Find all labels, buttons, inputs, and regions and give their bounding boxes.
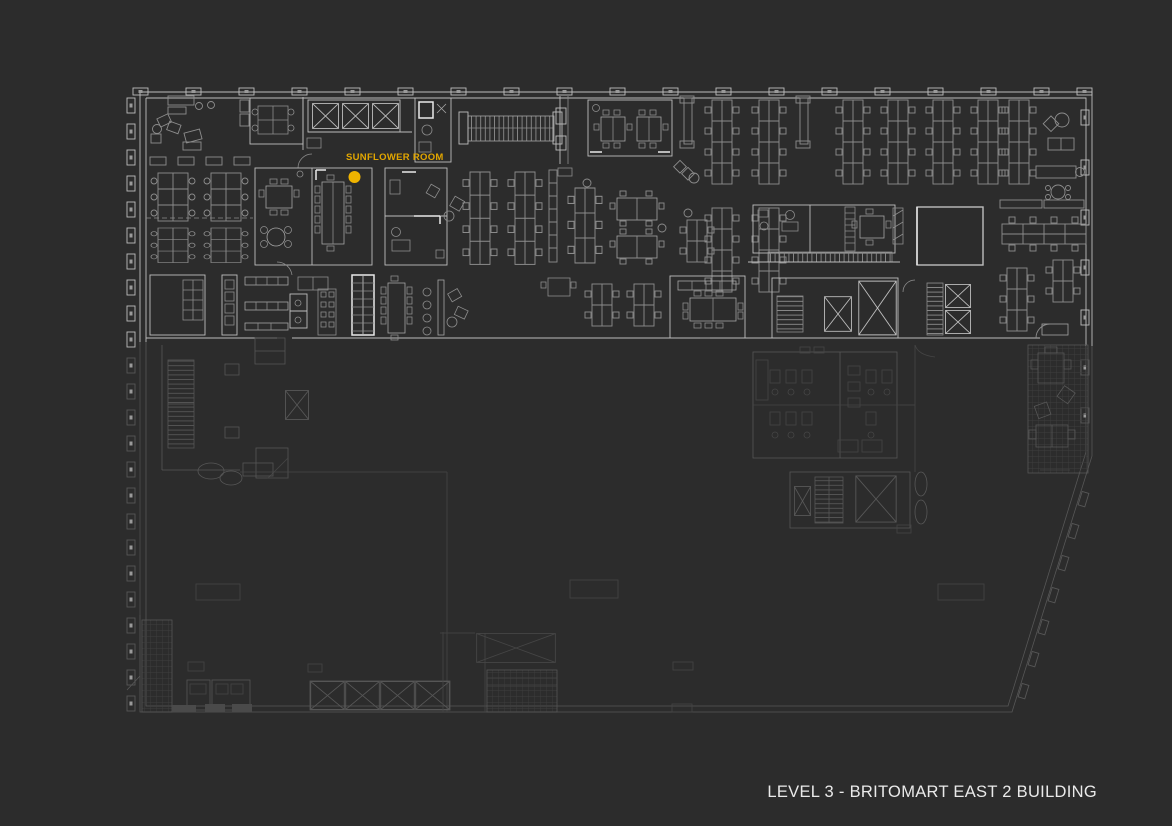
column-markers-top <box>133 88 1092 95</box>
lounge-area <box>150 96 250 165</box>
building-outline <box>140 92 1092 712</box>
meeting-room-top <box>588 100 672 156</box>
desk-benches-middle <box>463 160 714 264</box>
lift-lobby-wall <box>556 96 572 176</box>
column-markers-left <box>127 98 135 711</box>
lift-stair-core-right <box>772 278 970 338</box>
sunflower-room-label: SUNFLOWER ROOM <box>346 152 444 163</box>
lower-lift-core <box>790 472 927 533</box>
lift-core-top <box>308 100 412 132</box>
sunflower-room-marker <box>349 171 361 183</box>
stairs-top <box>459 112 562 144</box>
kitchen-service-band <box>150 262 661 340</box>
floor-plan-canvas: SUNFLOWER ROOM LEVEL 3 - BRITOMART EAST … <box>0 0 1172 826</box>
corner-office <box>250 97 321 168</box>
desk-benches-right <box>680 96 1086 331</box>
office-rooms-right <box>748 205 903 262</box>
floor-plan-drawing <box>0 0 1172 826</box>
lower-shell <box>140 338 984 712</box>
manager-area-right <box>1000 113 1085 338</box>
bathroom-core <box>753 347 915 458</box>
breakout-room-lower-right <box>1028 345 1088 473</box>
office-rooms-block <box>385 168 465 265</box>
bottom-edge-structures <box>127 620 693 712</box>
plan-title: LEVEL 3 - BRITOMART EAST 2 BUILDING <box>767 783 1097 802</box>
desk-pods-left <box>146 173 253 263</box>
project-room-right <box>917 207 983 265</box>
meeting-room-band <box>670 276 745 338</box>
